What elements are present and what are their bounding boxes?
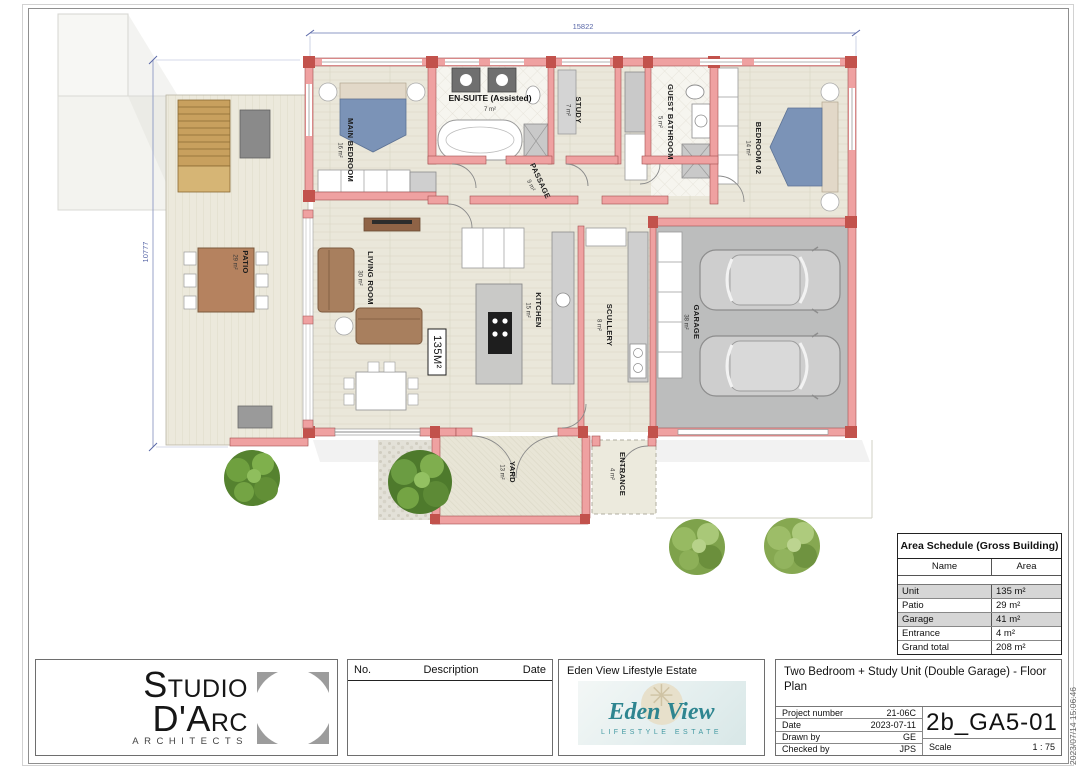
svg-text:LIVING ROOM: LIVING ROOM: [366, 251, 375, 305]
svg-text:135M²: 135M²: [431, 335, 443, 369]
svg-text:29 m²: 29 m²: [232, 254, 238, 269]
row-area: 29 m²: [991, 599, 1061, 612]
unit-area-box: 135M²: [428, 329, 446, 375]
svg-text:15 m²: 15 m²: [525, 302, 531, 317]
client-box: Eden View Lifestyle Estate ✳ Eden View L…: [558, 659, 765, 756]
architect-tagline: ARCHITECTS: [44, 736, 248, 747]
bedroom02-closet: [716, 68, 738, 184]
client-name: Eden View Lifestyle Estate: [567, 665, 756, 677]
svg-text:5 m²: 5 m²: [657, 116, 663, 128]
field-label: Date: [782, 720, 801, 730]
table-row: Entrance 4 m²: [898, 627, 1061, 641]
title-block-fields: Project number 21-06C Date 2023-07-11 Dr…: [776, 707, 922, 755]
field-value: GE: [903, 732, 916, 742]
svg-text:STUDY: STUDY: [574, 97, 583, 124]
adjacent-building-outline: [58, 14, 178, 210]
architect-name: Studio D'Arc: [44, 668, 248, 736]
svg-text:SCULLERY: SCULLERY: [605, 304, 614, 347]
svg-text:13 m²: 13 m²: [499, 464, 505, 479]
revision-col-date: Date: [508, 664, 546, 676]
revision-col-description: Description: [394, 664, 508, 676]
architect-title-box: Studio D'Arc ARCHITECTS: [35, 659, 338, 756]
field-checked-by: Checked by JPS: [776, 744, 922, 755]
tree-4: [764, 518, 820, 574]
title-block: Two Bedroom + Study Unit (Double Garage)…: [775, 659, 1062, 756]
field-label: Drawn by: [782, 732, 820, 742]
estate-logo-script: Eden View: [608, 700, 714, 724]
svg-text:7 m²: 7 m²: [565, 104, 571, 116]
scale-value: 1 : 75: [1032, 742, 1055, 752]
row-name: Grand total: [898, 641, 991, 654]
field-label: Checked by: [782, 744, 830, 754]
revision-col-no: No.: [354, 664, 394, 676]
svg-text:38 m²: 38 m²: [683, 314, 689, 329]
field-project-number: Project number 21-06C: [776, 707, 922, 719]
svg-text:10777: 10777: [141, 242, 150, 263]
row-name: Garage: [898, 613, 991, 626]
scale-label: Scale: [929, 742, 952, 752]
svg-text:GUEST BATHROOM: GUEST BATHROOM: [666, 84, 675, 160]
tree-1: [224, 450, 280, 506]
tree-2: [388, 450, 452, 514]
svg-text:15822: 15822: [573, 22, 594, 31]
kitchen-fixtures: [462, 228, 574, 384]
living-glazing: [303, 210, 313, 428]
svg-text:PATIO: PATIO: [241, 250, 250, 273]
table-row: Garage 41 m²: [898, 613, 1061, 627]
planter-box: [240, 110, 270, 158]
estate-logo: ✳ Eden View LIFESTYLE ESTATE: [578, 681, 746, 745]
drawing-sheet: 15822 10777 MAIN BEDROOM 16 m² EN-SUITE …: [0, 0, 1087, 768]
svg-text:30 m²: 30 m²: [357, 270, 363, 285]
area-schedule-header: Name Area: [898, 559, 1061, 576]
braai-unit: [238, 406, 272, 428]
tree-3: [669, 519, 725, 575]
main-bedroom-wardrobe: [318, 170, 436, 192]
table-row: Unit 135 m²: [898, 585, 1061, 599]
svg-text:4 m²: 4 m²: [609, 468, 615, 480]
svg-text:7 m²: 7 m²: [484, 107, 496, 113]
table-row: Patio 29 m²: [898, 599, 1061, 613]
area-schedule-spacer: [898, 576, 1061, 585]
field-date: Date 2023-07-11: [776, 719, 922, 731]
area-schedule-table: Area Schedule (Gross Building) Name Area…: [897, 533, 1062, 655]
row-name: Unit: [898, 585, 991, 598]
svg-text:KITCHEN: KITCHEN: [534, 292, 543, 327]
svg-text:MAIN BEDROOM: MAIN BEDROOM: [346, 118, 355, 182]
table-row: Grand total 208 m²: [898, 641, 1061, 654]
drawing-title: Two Bedroom + Study Unit (Double Garage)…: [776, 660, 1061, 707]
field-drawn-by: Drawn by GE: [776, 732, 922, 744]
revision-table-header: No. Description Date: [348, 660, 552, 681]
field-value: 21-06C: [886, 708, 916, 718]
row-area: 135 m²: [991, 585, 1061, 598]
field-label: Project number: [782, 708, 843, 718]
field-value: JPS: [899, 744, 916, 754]
row-name: Entrance: [898, 627, 991, 640]
drawing-number: 2b_GA5-01: [923, 707, 1061, 738]
architect-logotype: Studio D'Arc ARCHITECTS: [44, 668, 248, 747]
svg-text:ENTRANCE: ENTRANCE: [618, 452, 627, 496]
column-header-area: Area: [991, 559, 1061, 575]
car-2: [700, 333, 840, 399]
scale-row: Scale 1 : 75: [923, 738, 1061, 755]
svg-text:8 m²: 8 m²: [596, 319, 602, 331]
estate-logo-tagline: LIFESTYLE ESTATE: [601, 729, 722, 736]
area-schedule-title: Area Schedule (Gross Building): [898, 534, 1061, 559]
plot-timestamp: 2023/07/14 15:06:46: [1068, 645, 1078, 765]
field-value: 2023-07-11: [871, 720, 916, 730]
car-1: [700, 247, 840, 313]
svg-text:BEDROOM 02: BEDROOM 02: [754, 122, 763, 175]
architect-logo-icon: [257, 672, 329, 744]
stairs: [178, 100, 230, 192]
svg-text:16 m²: 16 m²: [337, 142, 343, 157]
study-desk: [558, 70, 576, 134]
row-area: 208 m²: [991, 641, 1061, 654]
revision-table: No. Description Date: [347, 659, 553, 756]
column-header-name: Name: [898, 559, 991, 575]
svg-text:GARAGE: GARAGE: [692, 305, 701, 340]
row-name: Patio: [898, 599, 991, 612]
garage-cabinets: [658, 232, 682, 378]
svg-text:YARD: YARD: [508, 461, 517, 483]
svg-text:14 m²: 14 m²: [745, 140, 751, 155]
row-area: 41 m²: [991, 613, 1061, 626]
svg-text:EN-SUITE (Assisted): EN-SUITE (Assisted): [448, 93, 531, 103]
row-area: 4 m²: [991, 627, 1061, 640]
dimension-top: 15822: [306, 22, 860, 56]
